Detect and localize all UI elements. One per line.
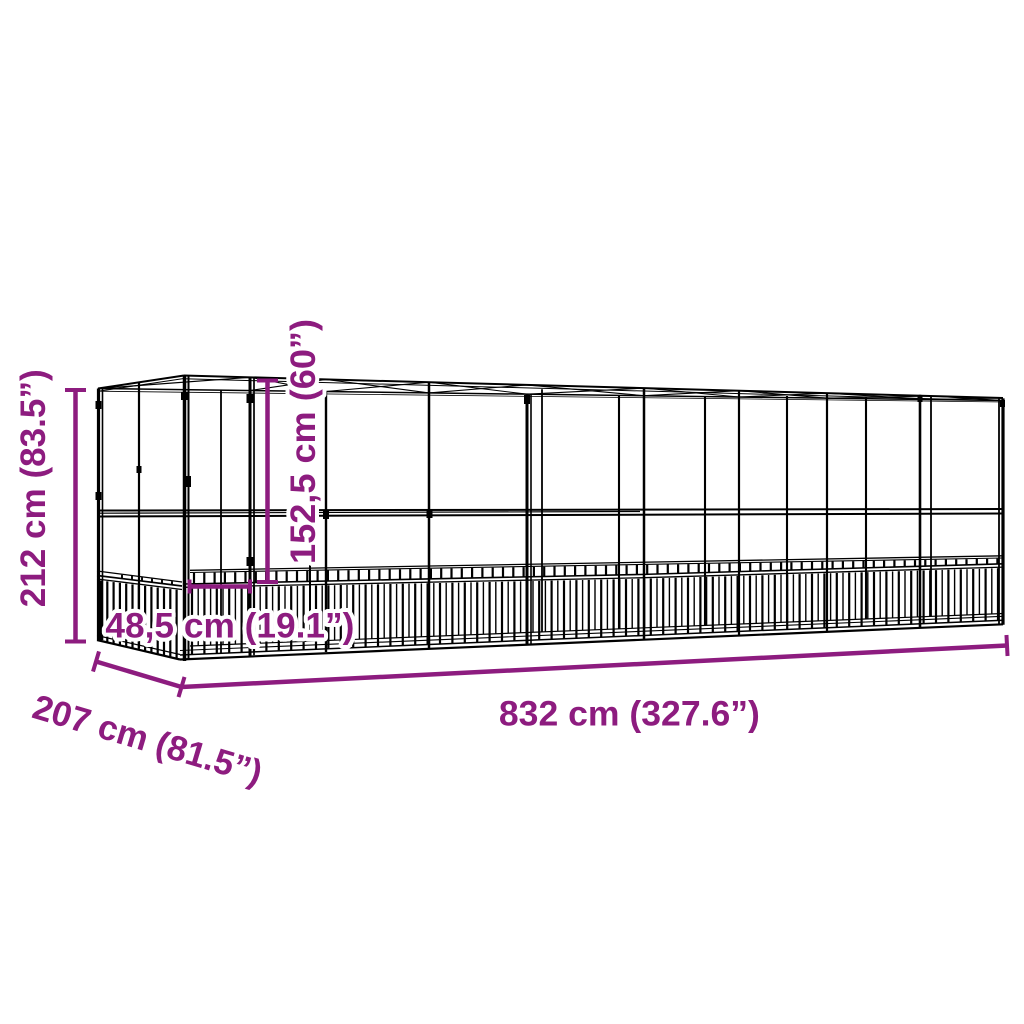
- svg-text:212 cm (83.5”): 212 cm (83.5”): [14, 369, 53, 607]
- svg-text:48,5 cm (19.1”): 48,5 cm (19.1”): [105, 607, 354, 646]
- svg-text:832 cm (327.6”): 832 cm (327.6”): [499, 694, 760, 733]
- svg-text:152,5 cm (60”): 152,5 cm (60”): [284, 319, 323, 564]
